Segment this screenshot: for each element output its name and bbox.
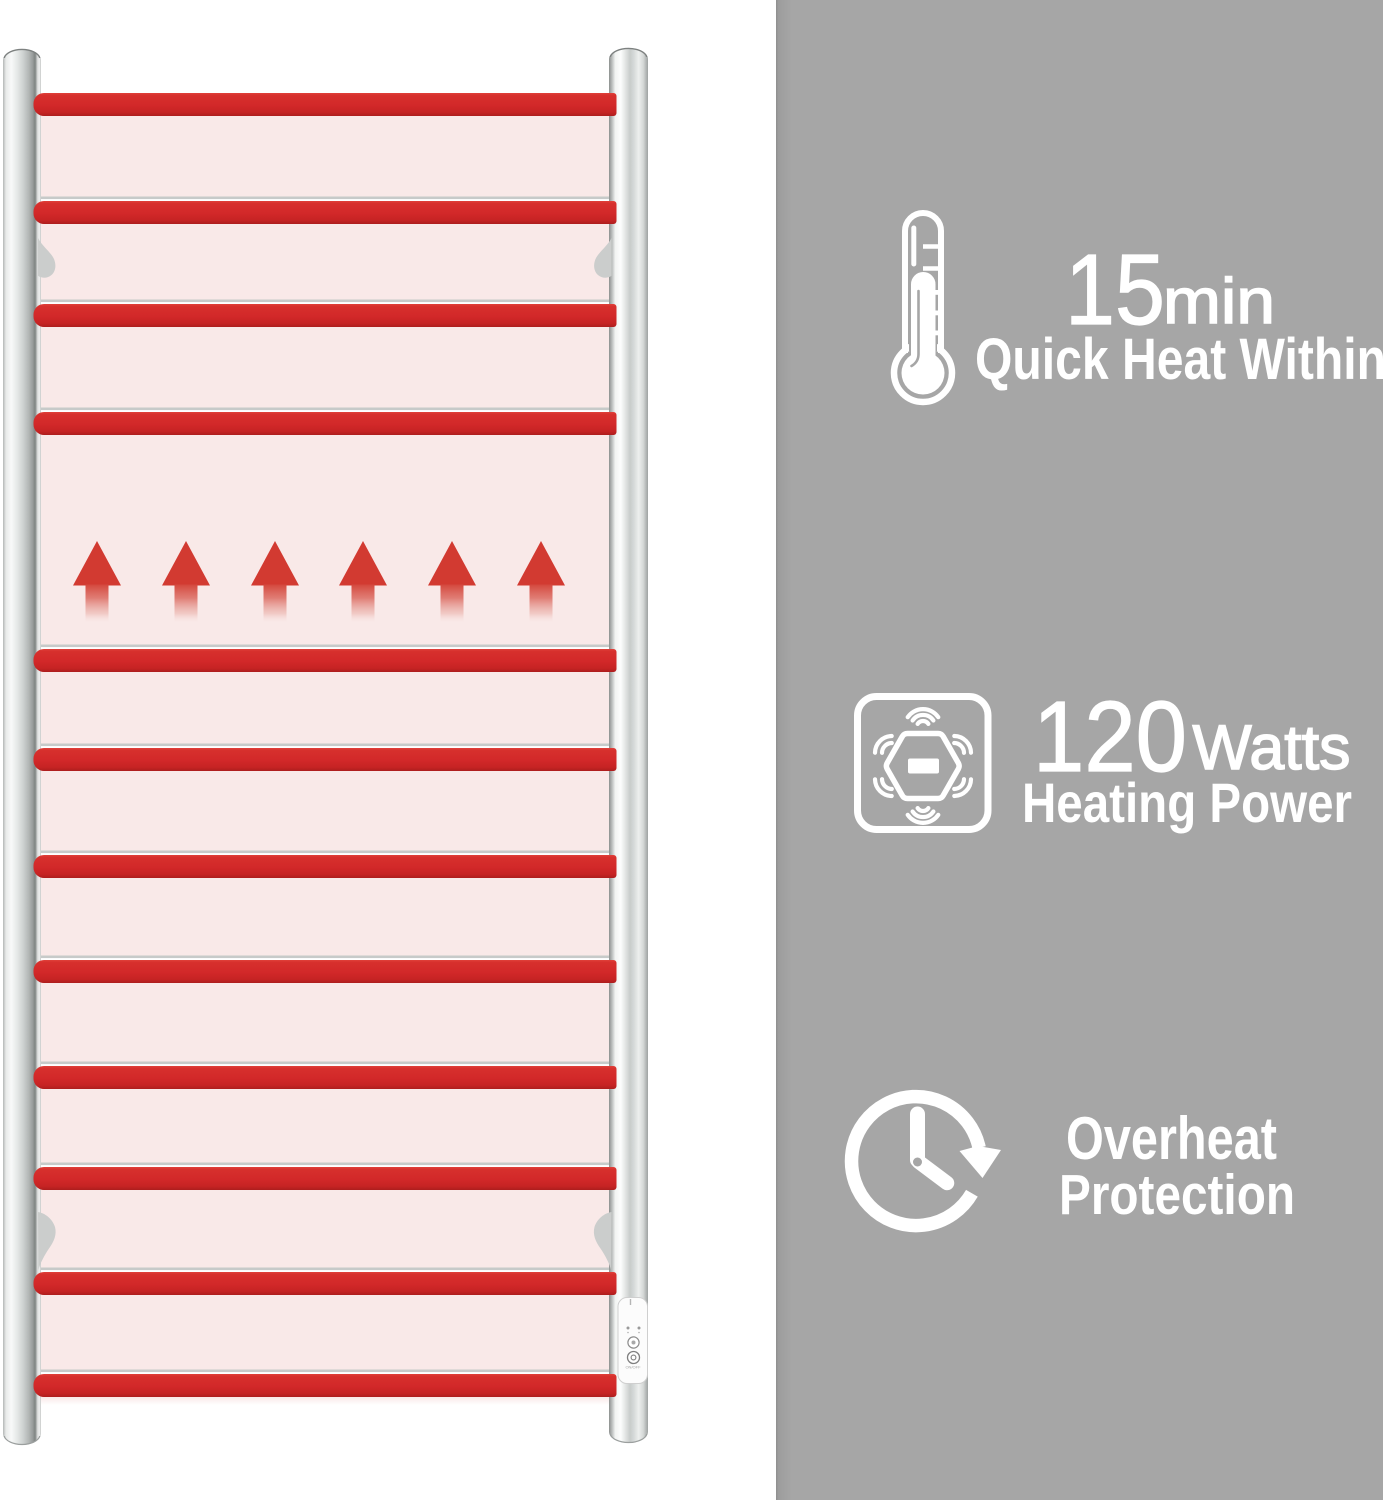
svg-text:ON/OFF: ON/OFF xyxy=(625,1365,641,1370)
svg-text:Protection: Protection xyxy=(1059,1163,1295,1227)
svg-text:Quick Heat Within: Quick Heat Within xyxy=(975,327,1383,392)
svg-text:Overheat: Overheat xyxy=(1066,1105,1277,1172)
svg-text:Heating Power: Heating Power xyxy=(1022,771,1352,834)
